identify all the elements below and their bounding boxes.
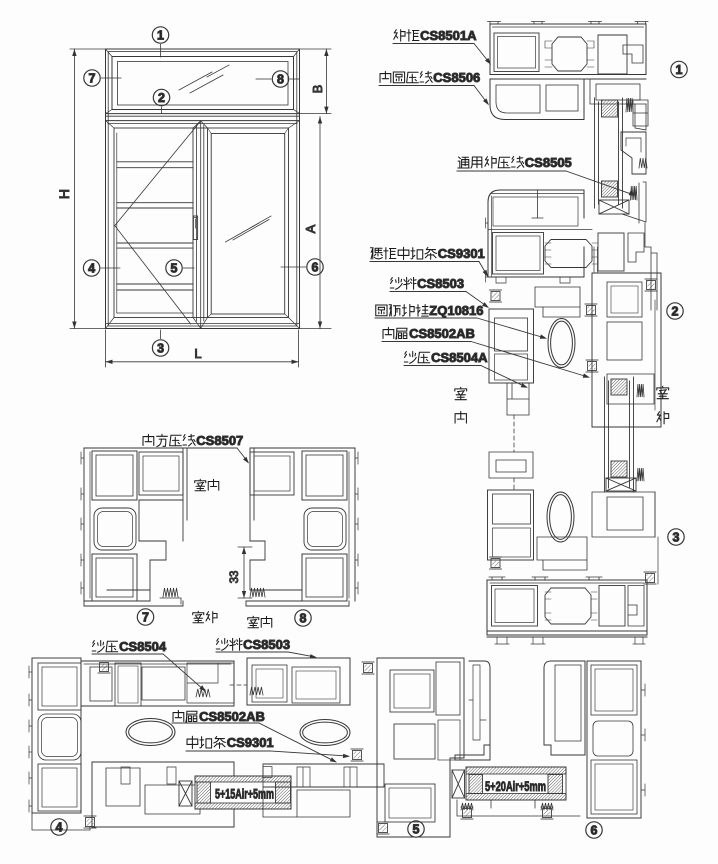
svg-text:CS8502AB: CS8502AB xyxy=(199,709,265,724)
svg-text:8: 8 xyxy=(277,73,284,87)
svg-text:4: 4 xyxy=(56,821,63,835)
svg-text:5+20Air+5mm: 5+20Air+5mm xyxy=(485,778,546,794)
svg-text:4: 4 xyxy=(88,262,95,276)
svg-text:CS8507: CS8507 xyxy=(196,433,243,448)
svg-text:A: A xyxy=(303,224,318,233)
svg-text:3: 3 xyxy=(673,531,680,545)
svg-text:CS8501A: CS8501A xyxy=(420,28,477,43)
svg-text:7: 7 xyxy=(89,72,96,86)
svg-text:8: 8 xyxy=(300,612,307,626)
svg-text:1: 1 xyxy=(676,63,683,77)
svg-text:CS8503: CS8503 xyxy=(243,637,290,652)
svg-text:CS8506: CS8506 xyxy=(433,70,480,85)
svg-text:CS9301: CS9301 xyxy=(227,735,274,750)
svg-text:L: L xyxy=(194,346,201,361)
svg-text:CS8502AB: CS8502AB xyxy=(409,326,475,341)
svg-text:33: 33 xyxy=(229,571,241,584)
svg-text:7: 7 xyxy=(142,611,149,625)
svg-text:B: B xyxy=(310,85,325,94)
svg-text:CS8504A: CS8504A xyxy=(431,350,488,365)
svg-text:CS9301: CS9301 xyxy=(438,246,485,261)
svg-text:2: 2 xyxy=(158,91,165,105)
svg-text:CS8505: CS8505 xyxy=(525,155,572,170)
svg-text:H: H xyxy=(56,189,72,199)
svg-text:3: 3 xyxy=(157,342,164,356)
svg-text:6: 6 xyxy=(591,824,598,838)
svg-text:5+15Air+5mm: 5+15Air+5mm xyxy=(215,786,274,802)
svg-text:ZQ10816: ZQ10816 xyxy=(429,303,483,318)
svg-text:CS8504: CS8504 xyxy=(119,639,167,654)
svg-text:2: 2 xyxy=(672,305,679,319)
svg-text:5: 5 xyxy=(413,823,420,837)
svg-text:CS8503: CS8503 xyxy=(417,276,464,291)
svg-text:5: 5 xyxy=(171,262,178,276)
svg-text:6: 6 xyxy=(312,261,319,275)
svg-text:1: 1 xyxy=(157,29,164,43)
